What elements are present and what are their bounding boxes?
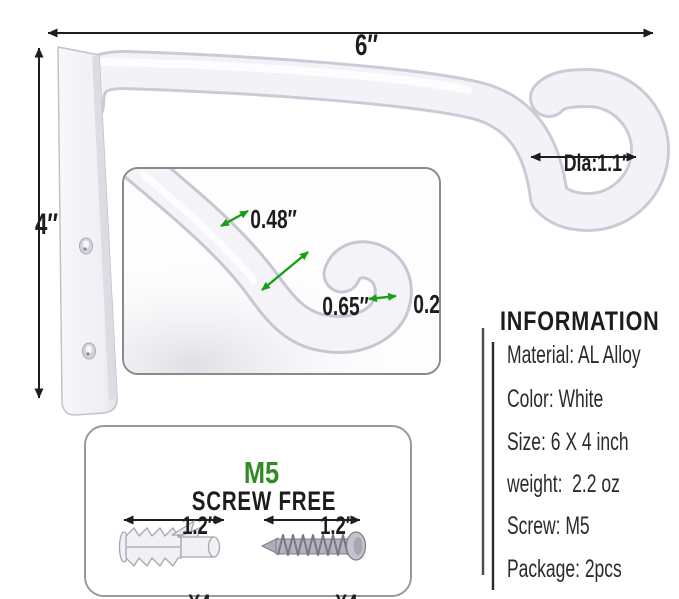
hook-detail-inset: 0.48″ 0.65″ 0.28″ xyxy=(122,167,441,375)
hook-diameter-label: Dia:1.1″ xyxy=(524,128,644,200)
screw-length-label: 1.2″ xyxy=(272,489,352,564)
product-dimension-diagram: 6″ 4″ Dia:1.1″ xyxy=(0,0,679,599)
info-row-material: Material: AL Alloy xyxy=(507,343,679,368)
hardware-box: M5 SCREW FREE xyxy=(84,425,412,597)
screw-hole-bottom xyxy=(83,343,96,359)
gap-label: 0.65″ xyxy=(271,267,351,345)
width-dimension-label: 6″ xyxy=(300,1,400,91)
info-row-package: Package: 2pcs xyxy=(507,557,671,582)
bracket-wall-plate xyxy=(58,47,117,415)
info-row-size: Size: 6 X 4 inch xyxy=(507,430,679,455)
height-dimension-label: 4″ xyxy=(0,180,38,270)
information-divider-lines xyxy=(480,325,498,593)
info-row-weight: weight: 2.2 oz xyxy=(507,472,668,497)
screw-hole-top xyxy=(80,238,93,254)
thickness-label: 0.48″ xyxy=(199,180,279,258)
screw-qty-label: X4 xyxy=(285,567,365,599)
anchor-length-label: 1.2″ xyxy=(134,489,214,564)
info-row-screw: Screw: M5 xyxy=(507,514,625,539)
info-row-color: Color: White xyxy=(507,387,645,412)
anchor-qty-label: X4 xyxy=(138,567,218,599)
tip-label: 0.28″ xyxy=(362,265,441,343)
